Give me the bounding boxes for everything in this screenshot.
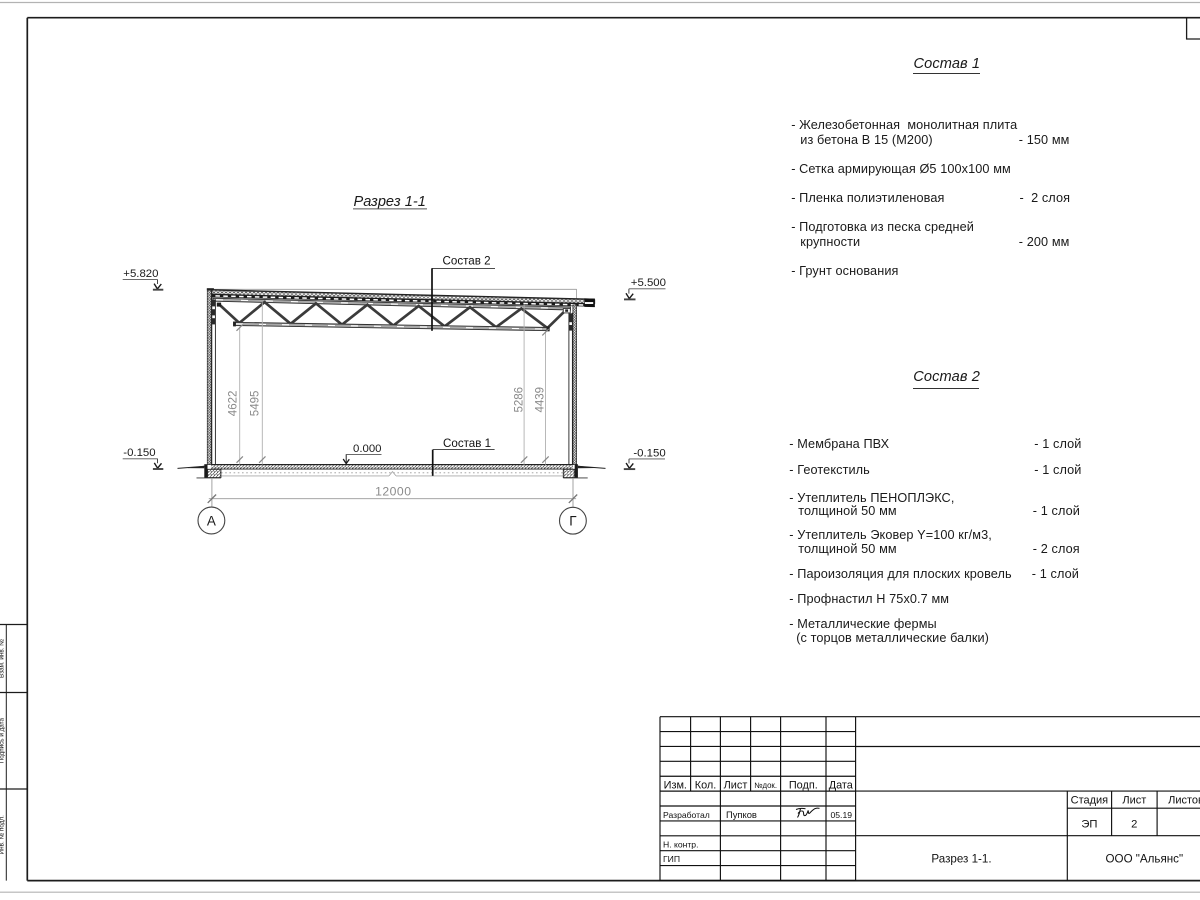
svg-text:Г: Г bbox=[569, 514, 577, 529]
svg-text:Пупков: Пупков bbox=[726, 809, 757, 820]
svg-text:Подпись и дата: Подпись и дата bbox=[0, 718, 6, 764]
svg-text:-0.150: -0.150 bbox=[633, 447, 665, 459]
svg-text:Листов: Листов bbox=[1168, 794, 1200, 806]
svg-text:Лист: Лист bbox=[1122, 794, 1146, 806]
svg-text:Изм.: Изм. bbox=[664, 780, 687, 792]
svg-text:ЭП: ЭП bbox=[1081, 819, 1097, 831]
svg-text:4622: 4622 bbox=[227, 391, 239, 417]
svg-text:+5.820: +5.820 bbox=[123, 268, 158, 280]
svg-text:Подп.: Подп. bbox=[789, 780, 818, 792]
svg-text:Разрез 1-1: Разрез 1-1 bbox=[354, 194, 426, 210]
svg-text:Состав 2: Состав 2 bbox=[443, 255, 491, 268]
svg-text:4439: 4439 bbox=[535, 387, 547, 413]
svg-text:ГИП: ГИП bbox=[663, 854, 680, 864]
svg-text:2: 2 bbox=[1131, 819, 1137, 831]
svg-text:12000: 12000 bbox=[375, 484, 411, 498]
svg-text:5495: 5495 bbox=[250, 391, 262, 417]
svg-text:+5.500: +5.500 bbox=[631, 277, 666, 289]
svg-text:05.19: 05.19 bbox=[831, 810, 853, 820]
svg-text:Разрез 1-1.: Разрез 1-1. bbox=[931, 852, 991, 865]
svg-text:ООО "Альянс": ООО "Альянс" bbox=[1106, 852, 1184, 865]
svg-text:№док.: №док. bbox=[754, 781, 777, 790]
svg-text:Стадия: Стадия bbox=[1071, 794, 1109, 806]
svg-text:Состав 1: Состав 1 bbox=[443, 437, 491, 450]
svg-text:Н. контр.: Н. контр. bbox=[663, 839, 698, 849]
svg-text:Дата: Дата bbox=[829, 780, 854, 792]
svg-text:5286: 5286 bbox=[513, 387, 525, 413]
svg-text:А: А bbox=[207, 513, 216, 528]
svg-text:Лист: Лист bbox=[724, 780, 748, 792]
svg-text:Разработал: Разработал bbox=[663, 810, 710, 820]
svg-text:Кол.: Кол. bbox=[695, 780, 717, 792]
svg-text:0.000: 0.000 bbox=[353, 443, 382, 455]
svg-text:-0.150: -0.150 bbox=[123, 447, 155, 459]
svg-text:Инв. № подл.: Инв. № подл. bbox=[0, 815, 6, 854]
svg-text:Взам. инв. №: Взам. инв. № bbox=[0, 639, 6, 678]
